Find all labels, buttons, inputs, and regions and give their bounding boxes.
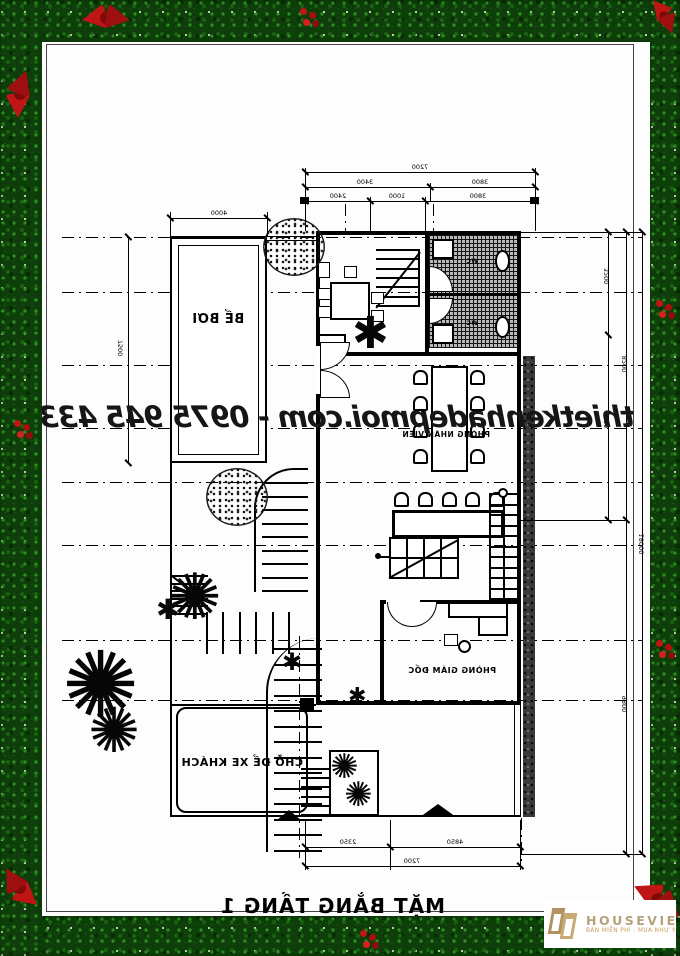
wall	[380, 600, 384, 705]
houseviet-logo: HOUSEVIET BÁN MIỄN PHÍ - MUA NHƯ Ý	[544, 900, 676, 948]
shrub-icon: ✱	[348, 686, 366, 708]
stair-tread	[274, 710, 322, 712]
stair-tread	[274, 772, 322, 774]
palm-icon: ✺	[88, 700, 140, 762]
stair-tread	[491, 546, 519, 548]
wc-label: WC	[460, 258, 484, 265]
stair-tread	[376, 305, 418, 307]
dim-label: 9800	[620, 696, 628, 713]
chair	[413, 449, 428, 464]
ltxt: HOUSEVIET BÁN MIỄN PHÍ - MUA NHƯ Ý	[586, 913, 680, 936]
knot	[13, 87, 27, 101]
dim-label: 1000	[382, 192, 412, 200]
stair-tread	[491, 556, 519, 558]
wc-sink	[432, 239, 454, 259]
entrance-marker	[420, 804, 456, 817]
stair-tread	[491, 577, 519, 579]
chair	[371, 292, 384, 304]
logo-tagline: BÁN MIỄN PHÍ - MUA NHƯ Ý	[586, 928, 680, 935]
chair	[413, 370, 428, 385]
dim-label: 3400	[340, 178, 390, 186]
watermark-text: thietkenhadepmoi.com - 0975 945 433	[50, 400, 635, 434]
stair-tread	[262, 550, 308, 552]
dimension-line	[305, 201, 535, 202]
tree-canopy	[206, 468, 268, 526]
stair-tread	[491, 504, 519, 506]
wc-label: WC	[460, 320, 484, 327]
stair-tread	[262, 563, 308, 565]
knot	[12, 880, 29, 897]
chair	[470, 449, 485, 464]
stair-tread	[491, 588, 519, 590]
tree-canopy	[263, 218, 325, 276]
dim-label: 3800	[455, 178, 505, 186]
dim-extension	[521, 854, 643, 855]
grid-line-v	[345, 204, 346, 234]
stair-tread	[274, 741, 322, 743]
dim-label: 3200	[602, 268, 610, 285]
palm-icon: ✺	[344, 778, 373, 812]
dim-extension	[521, 232, 643, 233]
berries-icon	[14, 420, 21, 427]
logo-name: HOUSEVIET	[586, 913, 680, 929]
stair-tread	[262, 590, 308, 592]
stair-tread	[222, 612, 224, 654]
stair-tread	[274, 757, 322, 759]
chair	[394, 492, 409, 507]
stair-tread	[376, 286, 418, 288]
dim-label: 2350	[323, 838, 373, 846]
berries-icon	[656, 300, 663, 307]
dim-label: 3800	[458, 192, 498, 200]
dim-label: 18000	[637, 534, 645, 555]
shrub-icon: ✱	[156, 596, 179, 624]
stair-rail	[503, 495, 505, 600]
dimension-line	[305, 172, 535, 173]
dim-label: 8200	[620, 356, 628, 373]
berries-icon	[656, 640, 663, 647]
wc-sink	[432, 324, 454, 344]
garland-border-left	[0, 0, 42, 956]
plan-title: MẶT BẰNG TẦNG 1	[230, 894, 445, 918]
stair-tread	[274, 726, 322, 728]
stair-tread	[262, 577, 308, 579]
stair-tread	[491, 535, 519, 537]
berries-icon	[360, 930, 367, 937]
stair-tread	[274, 850, 322, 852]
stair-leader-dot	[375, 553, 381, 559]
stair-tread	[255, 612, 257, 654]
shrub-icon: ✱	[352, 312, 389, 356]
knot	[657, 9, 670, 22]
dim-label: 7200	[382, 857, 442, 865]
stair-tread	[262, 509, 308, 511]
shrub-icon: ✱	[282, 650, 302, 674]
director-room-label: PHÒNG GIÁM ĐỐC	[396, 666, 508, 675]
chair	[465, 492, 480, 507]
grid-line-v	[521, 818, 522, 866]
chair	[418, 492, 433, 507]
stair-tread	[274, 679, 322, 681]
dim-label: 4000	[196, 209, 242, 217]
dim-label: 7500	[116, 340, 124, 357]
floor-plan-page: BỂ BƠI WC WC ✱ PHÒNG NHÂN VIÊN	[0, 0, 680, 956]
stair-tread	[262, 523, 308, 525]
stair-tread	[274, 834, 322, 836]
houseviet-monogram-icon	[548, 908, 580, 940]
ribbon-bow-icon	[82, 2, 130, 34]
stair-tread	[262, 496, 308, 498]
stair-tread	[262, 482, 308, 484]
dimension-line	[170, 218, 268, 219]
stair-tread	[491, 514, 519, 516]
dimension-line	[626, 232, 627, 855]
pool-label: BỂ BƠI	[173, 312, 263, 327]
stair-tread	[262, 536, 308, 538]
office-chair	[458, 640, 471, 653]
stair-tread	[491, 525, 519, 527]
chair	[442, 492, 457, 507]
stair-tread	[274, 695, 322, 697]
cabinet	[318, 262, 330, 278]
grid-line-v	[433, 204, 434, 234]
plot-line-right	[520, 705, 521, 817]
stair-tread	[239, 612, 241, 654]
wc-toilet	[495, 250, 510, 272]
garland-border-right	[650, 0, 680, 956]
stair-arrow	[276, 810, 302, 821]
chair	[470, 370, 485, 385]
stair-tread	[376, 268, 418, 270]
chair	[344, 266, 357, 278]
dimension-line	[305, 187, 535, 188]
stair-tread	[274, 803, 322, 805]
plot-line-right	[514, 705, 515, 817]
stair-tread	[274, 788, 322, 790]
knot	[100, 12, 112, 24]
wall	[429, 293, 517, 296]
stair-newel	[498, 488, 508, 498]
stair-tread	[491, 598, 519, 600]
stair-tread	[491, 567, 519, 569]
dimension-line	[305, 847, 520, 848]
dim-label: 4850	[425, 838, 485, 846]
wc-toilet	[495, 316, 510, 338]
chair	[318, 288, 331, 300]
berries-icon	[300, 8, 307, 15]
chair	[318, 306, 331, 318]
dim-label: 7200	[390, 163, 450, 171]
dimension-line	[305, 866, 520, 867]
chair-row	[394, 492, 504, 509]
director-desk	[478, 616, 508, 636]
stair-tread	[376, 249, 418, 251]
conference-table	[392, 510, 504, 538]
dim-label: 2400	[318, 192, 358, 200]
desk-return	[444, 634, 458, 646]
